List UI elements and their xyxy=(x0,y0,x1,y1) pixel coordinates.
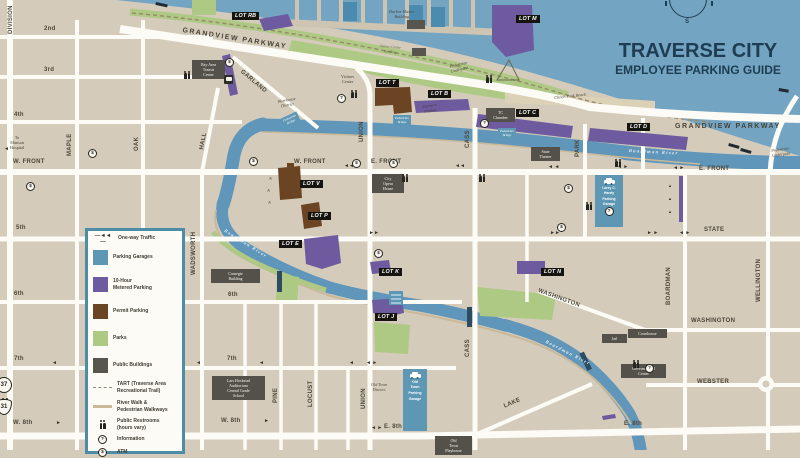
street-label-union-south: UNION xyxy=(361,388,368,409)
lot-m-label: LOT M xyxy=(516,15,540,23)
street-label-w-front: W. FRONT xyxy=(294,159,326,166)
harbor-master-building: Harbor MasterBuilding xyxy=(389,9,414,19)
street-label-division: DIVISION xyxy=(8,5,15,34)
info-icon: ? xyxy=(605,207,614,216)
street-label-pine: PINE xyxy=(273,388,280,403)
legend-items: —◄◄—One-way TrafficParking Garages10-Hou… xyxy=(93,233,180,458)
restroom-icon-wrap xyxy=(402,169,408,187)
senior-center-building: Senior CenterBuilding xyxy=(379,44,401,55)
restroom-icon-wrap xyxy=(486,70,492,88)
info-icon-wrap: ? xyxy=(480,111,489,129)
one-way-traffic-label: One-way Traffic xyxy=(118,235,155,242)
legend-item-metered-parking: 10-HourMetered Parking xyxy=(93,271,180,298)
warehouse-district: WarehouseDistrict xyxy=(277,96,297,109)
boardman-river-label-east: Boardman River xyxy=(629,148,679,156)
oneway-arrow-icon: ◄ ► xyxy=(673,166,684,172)
restroom-icon xyxy=(351,90,357,99)
oneway-arrow-icon: ◄ ► xyxy=(679,231,690,237)
legend: —◄◄—One-way TrafficParking Garages10-Hou… xyxy=(85,228,185,454)
oneway-arrow-icon: ►► xyxy=(369,231,379,237)
public-restrooms-swatch xyxy=(93,420,112,429)
legend-item-public-buildings: Public Buildings xyxy=(93,352,180,378)
street-label-w-8th: W. 8th xyxy=(221,418,240,425)
atm-icon-wrap: $ xyxy=(374,241,383,259)
atm-icon: $ xyxy=(98,448,107,457)
state-theater: StateTheater xyxy=(531,147,560,161)
oneway-arrow-icon: ◄ xyxy=(259,361,264,367)
lot-rb-label: LOT RB xyxy=(232,12,259,20)
lot-v-label: LOT V xyxy=(300,180,323,188)
lot-b-label: LOT B xyxy=(428,90,451,98)
legend-item-atm: $ATM xyxy=(93,446,180,458)
clinch-park-beach: Clinch Park Beach xyxy=(554,92,586,100)
atm-icon: $ xyxy=(374,249,383,258)
oneway-arrow-icon: ▲ xyxy=(668,210,672,214)
street-label-lake: LAKE xyxy=(503,397,522,410)
car-icon xyxy=(604,178,615,185)
street-label-maple: MAPLE xyxy=(67,134,74,157)
oneway-arrow-icon: ▲ xyxy=(668,184,672,188)
atm-icon: $ xyxy=(225,58,234,67)
tart-trail-swatch xyxy=(93,387,112,388)
atm-icon: $ xyxy=(26,182,35,191)
street-label-webster: WEBSTER xyxy=(697,379,729,386)
atm-icon: $ xyxy=(88,149,97,158)
jail: Jail xyxy=(602,334,627,343)
street-label-w-front-left: W. FRONT xyxy=(13,159,45,166)
one-way-traffic-swatch: —◄◄— xyxy=(93,233,113,245)
river-walk-label: River Walk &Pedestrian Walkways xyxy=(117,400,168,413)
restroom-icon xyxy=(486,75,492,84)
larry-hardy-parking-garage: Larry C.HardyParking Garage? xyxy=(595,175,623,227)
oneway-arrow-icon: ◄ ◄ xyxy=(548,165,559,171)
street-label-wadsworth: WADSWORTH xyxy=(191,232,198,275)
oneway-arrow-icon: ◄ xyxy=(52,361,57,367)
pedestrian-bridge-3: PedestrianBridge xyxy=(498,128,516,138)
atm-icon: $ xyxy=(389,159,398,168)
street-label-cass-south: CASS xyxy=(465,339,472,357)
street-label-3rd: 3rd xyxy=(44,67,54,74)
legend-item-tart-trail: TART (Traverse AreaRecreational Trail) xyxy=(93,378,180,397)
street-label-wellington: WELLINGTON xyxy=(756,259,763,302)
street-label-grandview-east: GRANDVIEW PARKWAY xyxy=(675,123,781,131)
parks-label: Parks xyxy=(113,335,127,342)
highway-31-badge: 31 xyxy=(0,399,12,415)
street-label-5th: 5th xyxy=(16,225,26,232)
lot-t-label: LOT T xyxy=(376,79,399,87)
oneway-arrow-icon: « xyxy=(267,177,273,180)
atm-swatch: $ xyxy=(93,448,112,457)
visitors-center: VisitorsCenter xyxy=(341,74,354,84)
pedestrian-bridge-1: PedestrianBridge xyxy=(280,111,300,128)
lot-n-label: LOT N xyxy=(541,268,564,276)
restroom-icon xyxy=(633,360,639,369)
restroom-icon xyxy=(100,420,106,429)
oneway-arrow-icon: ◄◄ xyxy=(455,164,465,170)
boardman-river-label-west: Boardman River xyxy=(223,228,268,259)
river-walk-swatch xyxy=(93,405,112,408)
oneway-arrow-icon: ► xyxy=(56,421,61,427)
lot-k-label: LOT K xyxy=(379,268,402,276)
permit-parking-label: Permit Parking xyxy=(113,308,148,315)
street-label-e-front-right: E. FRONT xyxy=(699,166,729,173)
legend-item-permit-parking: Permit Parking xyxy=(93,298,180,325)
car-icon xyxy=(410,372,421,379)
atm-icon-wrap: $ xyxy=(225,50,234,68)
compass-south-label: S xyxy=(685,19,689,25)
street-label-6th: 6th xyxy=(228,292,238,299)
oneway-arrow-icon: « xyxy=(266,201,272,204)
old-town-parking-garage: OldTownParkingGarage xyxy=(403,369,427,431)
courthouse: Courthouse xyxy=(628,329,667,338)
street-label-locust: LOCUST xyxy=(308,381,315,407)
street-label-7th-left: 7th xyxy=(14,356,24,363)
restroom-icon xyxy=(586,202,592,211)
city-opera-house: CityOperaHouse xyxy=(372,174,404,193)
highway-37-badge: 37 xyxy=(0,377,12,393)
legend-item-river-walk: River Walk &Pedestrian Walkways xyxy=(93,397,180,416)
restroom-icon-wrap xyxy=(184,66,190,84)
compass-tick-east xyxy=(711,1,713,6)
oneway-arrow-icon: ◄ ► xyxy=(366,361,377,367)
oneway-arrow-icon: ◄ ► xyxy=(371,426,382,432)
oneway-arrow-icon: « xyxy=(265,189,271,192)
parking-guide-map: { "title":{"line1":"TRAVERSE CITY","line… xyxy=(0,0,800,450)
street-label-grandview-diag: GRANDVIEW PARKWAY xyxy=(182,27,288,51)
legend-item-information: ?Information xyxy=(93,433,180,446)
public-buildings-swatch xyxy=(93,358,108,373)
lars-hockstad-auditorium: Lars HockstadAuditorium Central GradeSch… xyxy=(212,376,265,400)
oneway-arrow-icon: ▲ xyxy=(668,197,672,201)
map-title: TRAVERSE CITY EMPLOYEE PARKING GUIDE xyxy=(600,41,796,76)
restroom-icon xyxy=(479,174,485,183)
atm-icon-wrap: $ xyxy=(564,176,573,194)
atm-icon: $ xyxy=(249,157,258,166)
restroom-icon-wrap xyxy=(479,169,485,187)
info-icon: ? xyxy=(480,119,489,128)
street-label-union-north: UNION xyxy=(359,121,366,142)
metered-parking-swatch xyxy=(93,277,108,292)
oneway-arrow-icon: ◄ xyxy=(349,361,354,367)
to-munson-hospital: ToMunsonHospital xyxy=(10,135,24,150)
restroom-icon-wrap xyxy=(615,154,621,172)
street-label-hall: HALL xyxy=(199,132,209,150)
permit-parking-swatch xyxy=(93,304,108,319)
restroom-icon xyxy=(615,159,621,168)
parking-garages-swatch xyxy=(93,250,108,265)
info-icon: ? xyxy=(645,364,654,373)
legend-item-parks: Parks xyxy=(93,325,180,352)
old-town-district: Old TownDistrict xyxy=(371,382,387,392)
street-label-boardman: BOARDMAN xyxy=(666,267,673,305)
bus-icon-wrap xyxy=(224,68,233,86)
title-line2: EMPLOYEE PARKING GUIDE xyxy=(600,64,796,76)
street-label-park: PARK xyxy=(575,139,582,157)
street-label-2nd: 2nd xyxy=(44,26,56,33)
street-label-w-8th-left: W. 8th xyxy=(13,420,32,427)
boardman-river-label-south: Boardman River xyxy=(545,339,592,366)
atm-icon-wrap: $ xyxy=(352,151,361,169)
street-label-e-8th-right: E. 8th xyxy=(624,421,642,428)
atm-icon-wrap: $ xyxy=(249,149,258,167)
bus-icon xyxy=(224,75,233,84)
atm-icon-wrap: $ xyxy=(26,174,35,192)
street-label-cass-north: CASS xyxy=(465,130,472,148)
legend-item-one-way-traffic: —◄◄—One-way Traffic xyxy=(93,233,180,244)
info-icon: ? xyxy=(98,435,107,444)
street-label-6th-left: 6th xyxy=(14,291,24,298)
atm-icon-wrap: $ xyxy=(88,141,97,159)
information-label: Information xyxy=(117,436,145,443)
lot-j-label: LOT J xyxy=(375,313,397,321)
title-line1: TRAVERSE CITY xyxy=(600,41,796,61)
atm-icon-wrap: $ xyxy=(389,151,398,169)
pedestrian-underpass-east: PedestrianUnderpass xyxy=(771,145,790,157)
carnegie-building: CarnegieBuilding xyxy=(211,269,260,283)
restroom-icon-wrap xyxy=(351,85,357,103)
legend-item-public-restrooms: Public Restrooms(hours vary) xyxy=(93,416,180,433)
info-icon-wrap: ? xyxy=(337,86,346,104)
lot-d-label: LOT D xyxy=(627,123,650,131)
legend-item-parking-garages: Parking Garages xyxy=(93,244,180,271)
public-restrooms-label: Public Restrooms(hours vary) xyxy=(117,418,160,431)
public-buildings-label: Public Buildings xyxy=(113,362,152,369)
street-label-garland: GARLAND xyxy=(239,69,268,95)
atm-icon: $ xyxy=(564,184,573,193)
atm-icon: $ xyxy=(352,159,361,168)
street-label-oak: OAK xyxy=(134,137,141,151)
restroom-icon-wrap xyxy=(633,355,639,373)
oneway-arrow-icon: ◄ xyxy=(4,147,9,153)
pedestrian-bridge-2: PedestrianBridge xyxy=(393,115,411,125)
street-label-e-8th: E. 8th xyxy=(384,424,402,431)
tart-trail-label: TART (Traverse AreaRecreational Trail) xyxy=(117,381,166,394)
lot-e-label: LOT E xyxy=(279,240,302,248)
information-swatch: ? xyxy=(93,435,112,444)
pedestrian-underpass-park: PedestrianUnderpass xyxy=(449,60,469,74)
lot-c-label: LOT C xyxy=(516,109,539,117)
restroom-icon xyxy=(184,71,190,80)
farmers-market: FarmersMarket xyxy=(422,102,438,114)
oneway-arrow-icon: ► xyxy=(264,419,269,425)
street-label-4th: 4th xyxy=(14,112,24,119)
street-label-state: STATE xyxy=(704,227,724,234)
oneway-arrow-icon: ► ► xyxy=(647,231,658,237)
bay-area-transit-center: Bay AreaTransitCenter xyxy=(192,60,225,79)
info-icon: ? xyxy=(337,94,346,103)
info-icon-wrap: ? xyxy=(645,356,654,374)
restroom-icon-wrap xyxy=(586,197,592,215)
oneway-arrow-icon: ◄ xyxy=(196,361,201,367)
old-town-playhouse: OldTownPlayhouse xyxy=(435,436,472,455)
restroom-icon xyxy=(402,174,408,183)
parks-swatch xyxy=(93,331,108,346)
street-label-washington: WASHINGTON xyxy=(691,318,735,325)
compass-tick-west xyxy=(665,1,667,6)
atm-icon: $ xyxy=(557,223,566,232)
street-label-7th: 7th xyxy=(227,356,237,363)
lot-p-label: LOT P xyxy=(308,212,331,220)
street-label-washington-diag: WASHINGTON xyxy=(537,288,581,309)
governmental-center: GovernmentalCenter xyxy=(621,364,666,378)
tc-chamber: TCChamber xyxy=(486,108,515,122)
atm-icon-wrap: $ xyxy=(557,215,566,233)
parking-garages-label: Parking Garages xyxy=(113,254,153,261)
metered-parking-label: 10-HourMetered Parking xyxy=(113,278,152,291)
